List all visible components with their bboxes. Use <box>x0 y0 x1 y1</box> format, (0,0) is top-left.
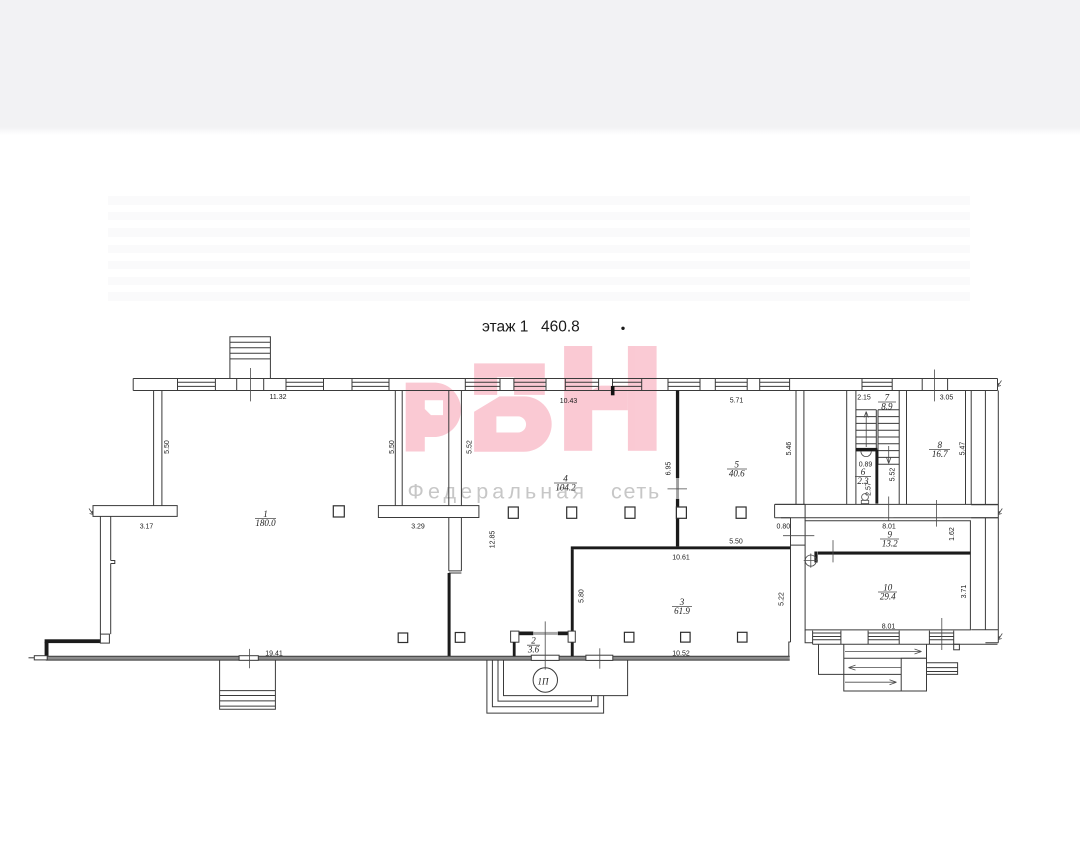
svg-text:5.22: 5.22 <box>779 592 786 606</box>
svg-text:3.6: 3.6 <box>527 644 540 654</box>
svg-text:3.71: 3.71 <box>961 585 968 599</box>
svg-text:16.7: 16.7 <box>932 449 948 459</box>
svg-text:1П: 1П <box>538 677 550 687</box>
svg-text:2.3: 2.3 <box>857 476 869 486</box>
svg-text:61.9: 61.9 <box>674 606 690 616</box>
svg-text:180.0: 180.0 <box>255 518 276 528</box>
svg-text:5.50: 5.50 <box>729 539 743 546</box>
svg-text:1.62: 1.62 <box>949 527 956 541</box>
svg-text:13.2: 13.2 <box>882 539 898 549</box>
svg-text:10.52: 10.52 <box>672 650 690 657</box>
svg-text:8.01: 8.01 <box>882 624 896 631</box>
svg-text:5.47: 5.47 <box>960 442 967 456</box>
svg-text:0.80: 0.80 <box>776 524 790 531</box>
svg-text:3.29: 3.29 <box>411 524 425 531</box>
svg-text:29.4: 29.4 <box>880 592 896 602</box>
svg-text:6.95: 6.95 <box>666 462 673 476</box>
svg-text:5.52: 5.52 <box>467 440 474 454</box>
svg-text:сеть: сеть <box>611 480 661 504</box>
svg-text:2.15: 2.15 <box>857 395 871 402</box>
svg-text:8.9: 8.9 <box>881 402 893 412</box>
svg-text:3.17: 3.17 <box>140 524 154 531</box>
svg-text:10.43: 10.43 <box>560 398 578 405</box>
svg-text:5.71: 5.71 <box>730 398 744 405</box>
svg-text:5.50: 5.50 <box>389 440 396 454</box>
svg-text:этаж 1: этаж 1 <box>482 319 528 336</box>
svg-text:3.05: 3.05 <box>940 395 954 402</box>
svg-text:5.52: 5.52 <box>890 468 897 482</box>
svg-text:40.6: 40.6 <box>729 469 745 479</box>
svg-text:5.80: 5.80 <box>579 589 586 603</box>
svg-text:460.8: 460.8 <box>541 319 580 336</box>
svg-text:5.46: 5.46 <box>786 442 793 456</box>
svg-text:11.32: 11.32 <box>270 394 287 401</box>
svg-text:19.41: 19.41 <box>265 651 283 658</box>
svg-text:104.2: 104.2 <box>555 483 576 493</box>
svg-text:5.50: 5.50 <box>164 440 171 454</box>
svg-text:12.85: 12.85 <box>490 531 497 549</box>
svg-text:10.61: 10.61 <box>672 555 690 562</box>
